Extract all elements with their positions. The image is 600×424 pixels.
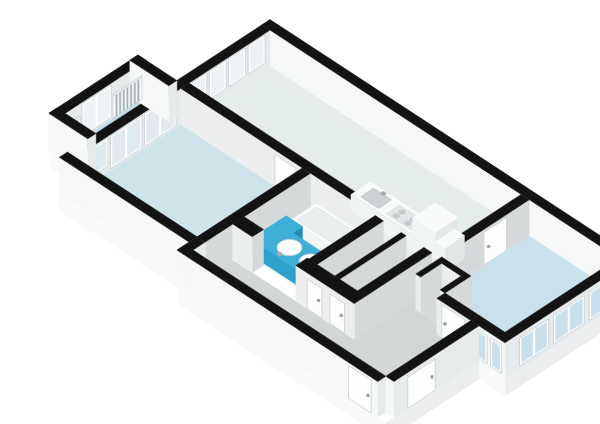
entry-door-handle [366, 394, 370, 398]
wall-step-wall-front [177, 250, 185, 291]
railing-bar [123, 89, 124, 111]
fixture-burner-1 [399, 210, 406, 214]
bed2-slider-2-mullion [125, 127, 127, 157]
railing-bar [134, 82, 135, 104]
wall-balcony-ne-face [169, 80, 177, 121]
fixture-kitchen-faucet [381, 192, 386, 196]
wc-door-1-handle [317, 299, 321, 303]
railing-bar [116, 94, 117, 116]
ext-storage-door-handle [430, 375, 434, 379]
living-door-handle [487, 245, 491, 249]
railing-bar [120, 92, 121, 114]
wall-hall-ne-ext-front [386, 376, 394, 417]
floorplan-figure [40, 16, 600, 424]
balcony-glass-door-mullion [96, 96, 98, 126]
bed1-door-handle [443, 322, 447, 326]
fixture-burner-3 [393, 214, 400, 218]
wall-sw-facade-b-face [378, 376, 386, 417]
wall-bed1-sw-ext-face [505, 338, 513, 379]
bed1-window-5-glass [492, 341, 499, 370]
railing-bar [130, 85, 131, 107]
wc-door-2-handle [339, 314, 343, 318]
railing-bar [127, 87, 128, 109]
fixture-faucet-left [277, 252, 282, 255]
floorplan-3d-svg [40, 16, 600, 424]
bed1-window-3-mullion [533, 330, 535, 355]
wall-duct-nook-wall-b-front [416, 274, 421, 313]
railing-bar [138, 80, 139, 102]
fixture-burner-4 [404, 221, 411, 225]
bed1-window-2-mullion [568, 307, 570, 332]
